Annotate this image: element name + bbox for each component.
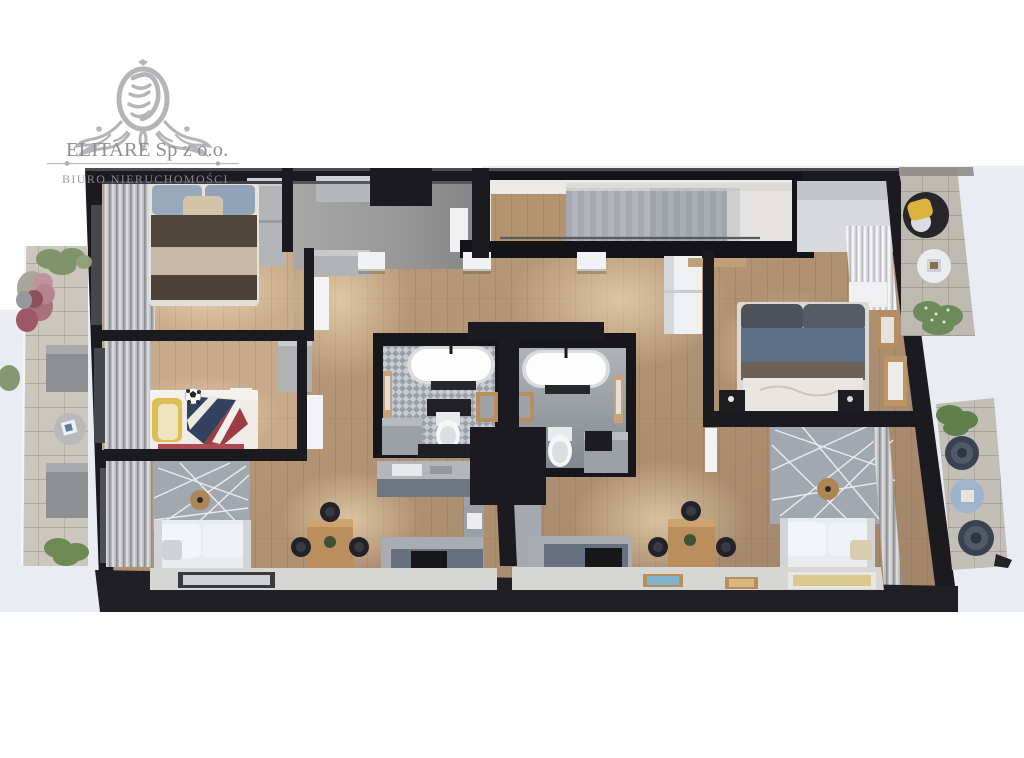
svg-text:ELITARE Sp z o.o.: ELITARE Sp z o.o. [66, 139, 228, 161]
svg-text:BIURO NIERUCHOMOŚCI: BIURO NIERUCHOMOŚCI [62, 172, 229, 186]
